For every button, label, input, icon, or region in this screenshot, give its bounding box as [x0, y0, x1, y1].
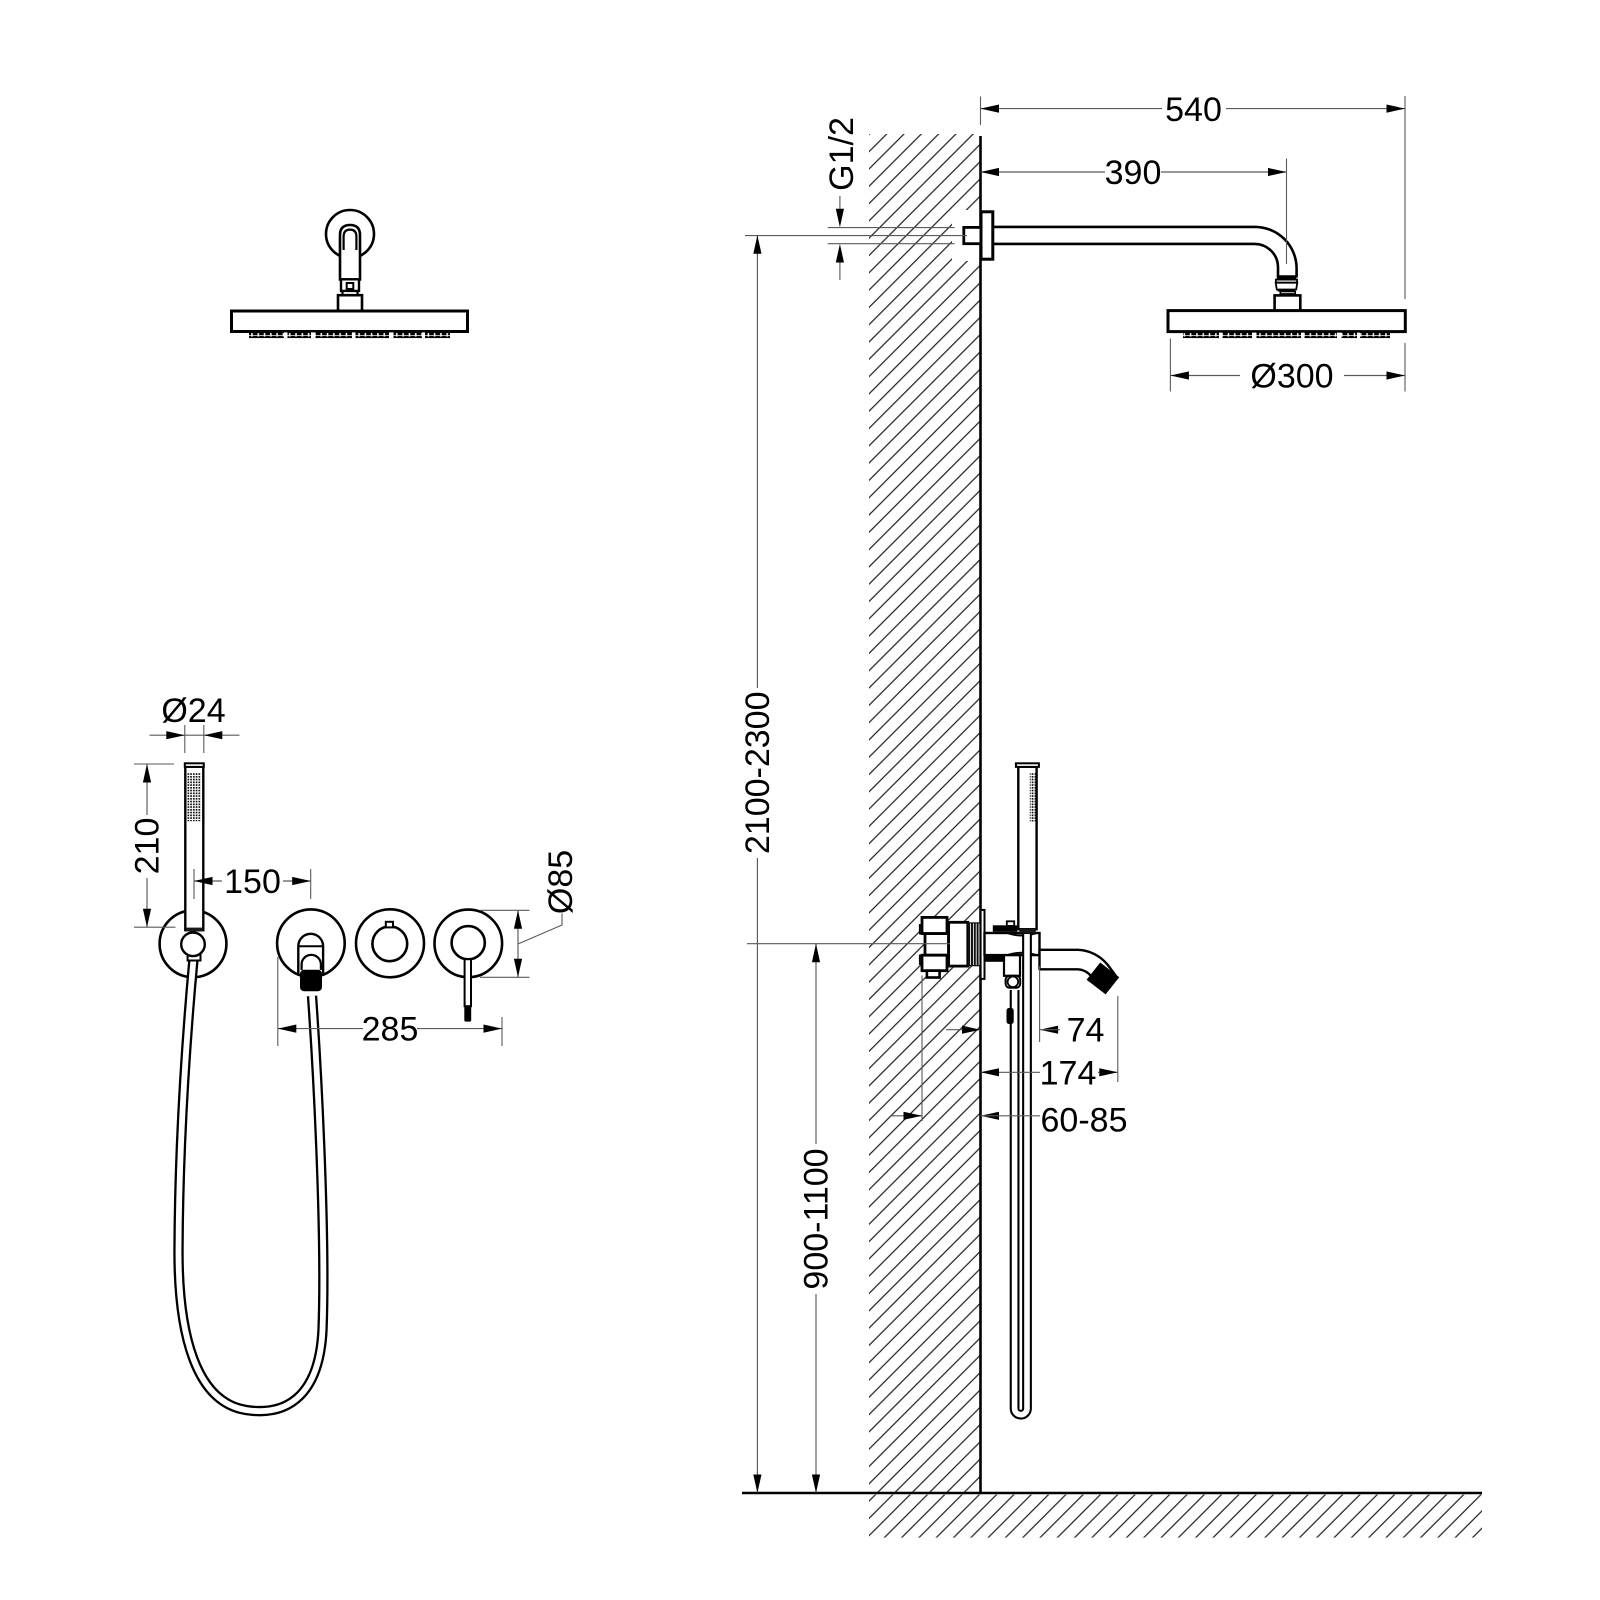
svg-text:Ø24: Ø24	[161, 692, 225, 730]
svg-text:Ø300: Ø300	[1250, 358, 1333, 396]
svg-text:60-85: 60-85	[1041, 1102, 1128, 1140]
svg-text:150: 150	[224, 863, 281, 901]
svg-text:900-1100: 900-1100	[798, 1148, 836, 1289]
svg-text:174: 174	[1040, 1054, 1097, 1092]
svg-text:74: 74	[1067, 1012, 1105, 1050]
svg-text:210: 210	[129, 818, 167, 875]
svg-text:390: 390	[1105, 154, 1162, 192]
svg-text:540: 540	[1165, 91, 1222, 129]
svg-text:285: 285	[362, 1011, 419, 1049]
svg-text:G1/2: G1/2	[823, 117, 861, 191]
svg-text:2100-2300: 2100-2300	[739, 691, 777, 854]
svg-text:Ø85: Ø85	[542, 850, 580, 914]
